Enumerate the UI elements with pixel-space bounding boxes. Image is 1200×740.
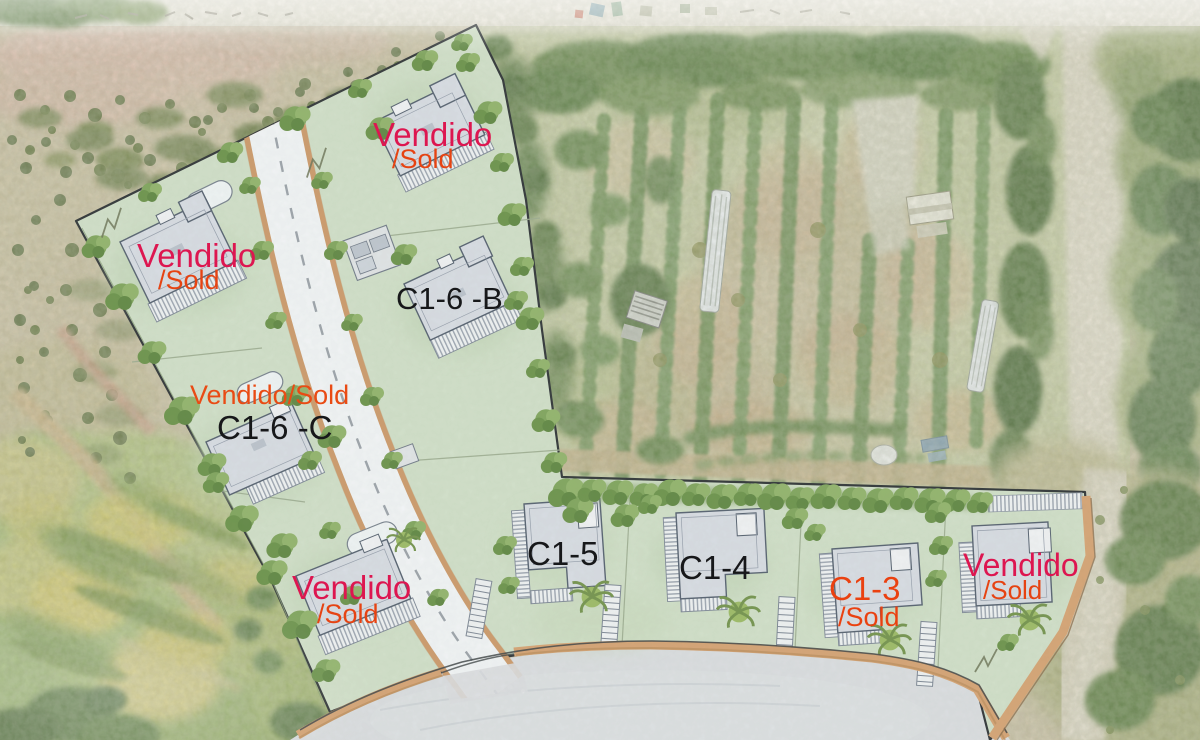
- svg-text:/Sold: /Sold: [158, 265, 220, 295]
- svg-text:C1-5: C1-5: [527, 535, 599, 572]
- svg-text:/Sold: /Sold: [392, 144, 454, 174]
- svg-text:Vendido/Sold: Vendido/Sold: [190, 380, 349, 410]
- svg-text:C1-6 -B: C1-6 -B: [396, 281, 503, 316]
- svg-text:C1-6 -C: C1-6 -C: [217, 409, 333, 446]
- svg-text:/Sold: /Sold: [983, 575, 1042, 605]
- svg-text:/Sold: /Sold: [838, 602, 900, 632]
- svg-text:C1-4: C1-4: [679, 549, 751, 586]
